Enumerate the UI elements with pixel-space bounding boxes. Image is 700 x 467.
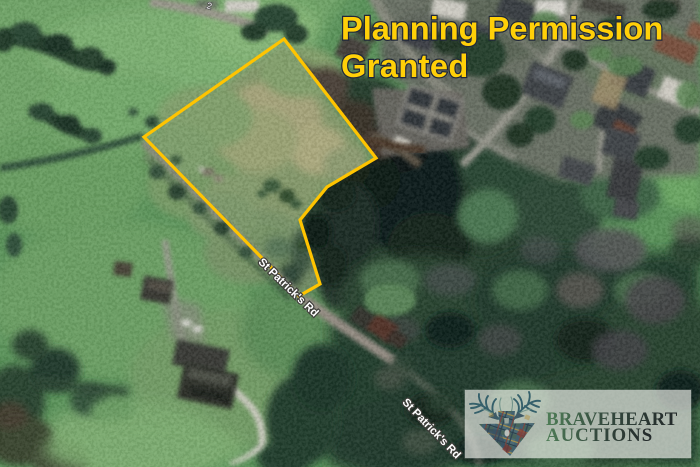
svg-text:Planning Permission: Planning Permission <box>341 10 663 47</box>
svg-text:Granted: Granted <box>341 47 469 84</box>
svg-text:AUCTIONS: AUCTIONS <box>546 425 653 446</box>
